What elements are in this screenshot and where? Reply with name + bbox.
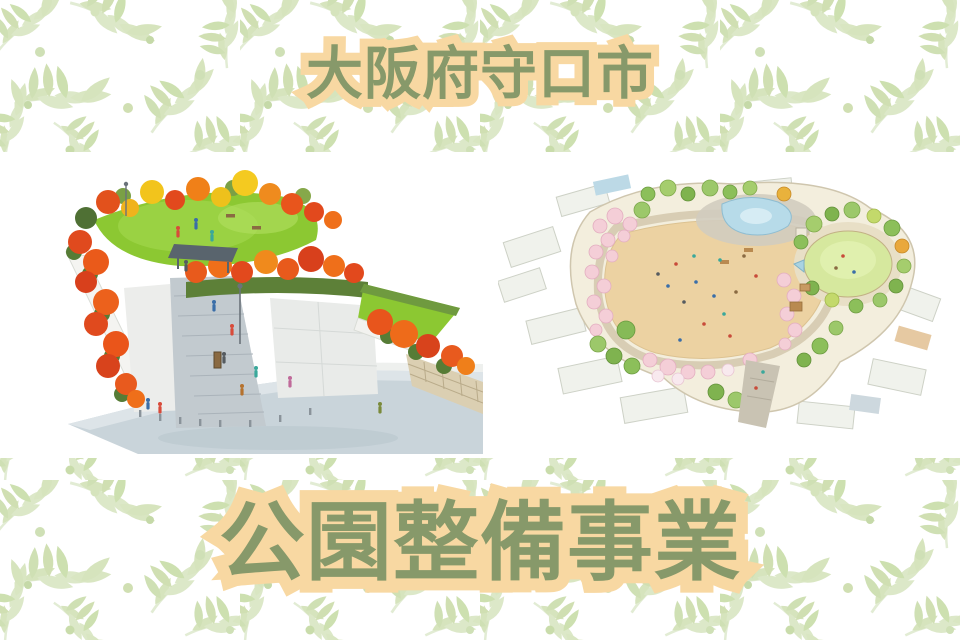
prefecture-city-title-text: 大阪府守口市: [306, 41, 654, 107]
prefecture-city-title: 大阪府守口市 大阪府守口市: [0, 42, 960, 108]
autumn-park-perspective-illustration: [28, 156, 483, 454]
banner: 大阪府守口市 大阪府守口市 公園整備事業 公園整備事業: [0, 0, 960, 640]
project-title-text: 公園整備事業: [219, 493, 741, 593]
illustration-band: [0, 152, 960, 458]
park-aerial-plan-illustration: [498, 164, 943, 436]
project-title: 公園整備事業 公園整備事業: [0, 494, 960, 593]
